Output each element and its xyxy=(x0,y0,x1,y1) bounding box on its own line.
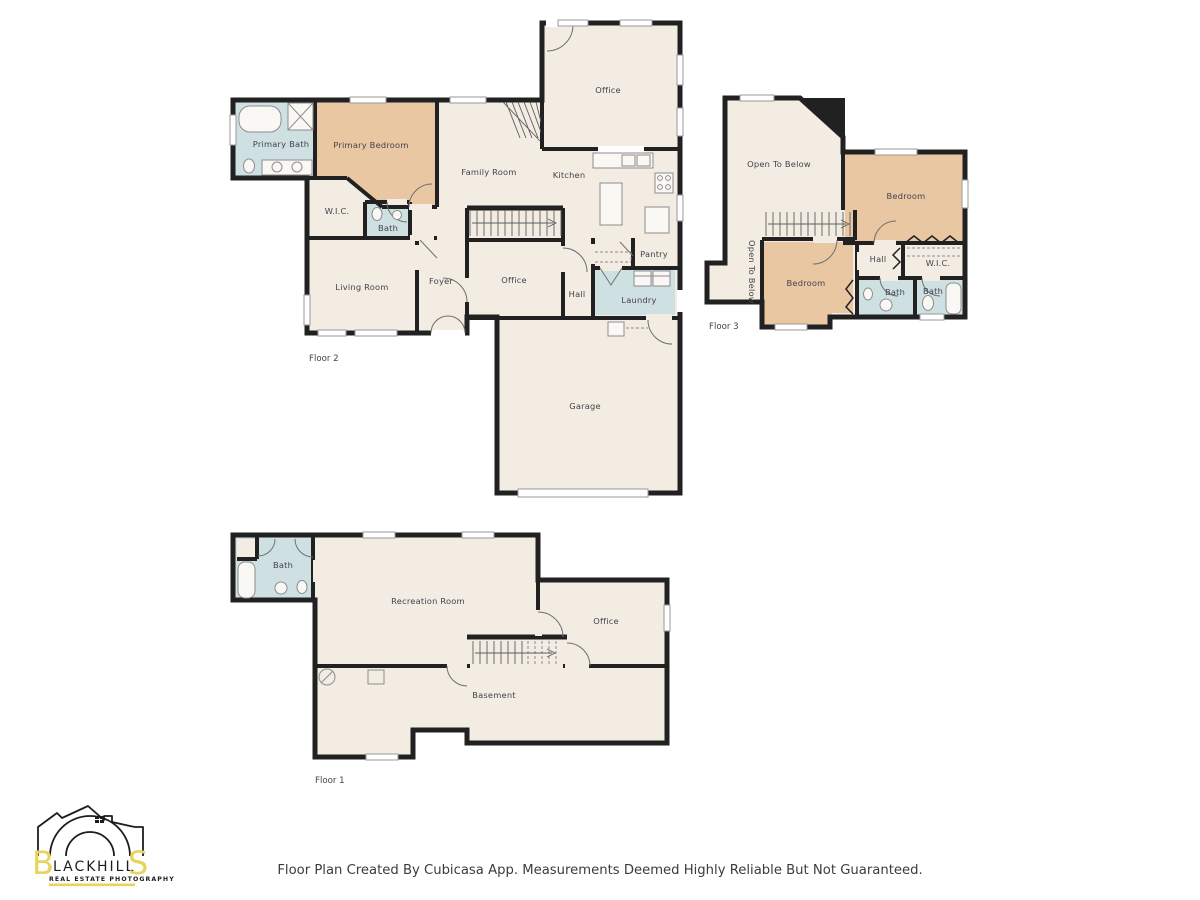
logo-underline xyxy=(49,884,135,887)
room-label-office-upper: Office xyxy=(595,85,621,95)
floor-3-plan: Open To Below Open To Below Bedroom Bedr… xyxy=(707,95,968,332)
room-label-office-lower: Office xyxy=(593,616,619,626)
room-label-foyer: Foyer xyxy=(429,276,453,286)
footer-caption: Floor Plan Created By Cubicasa App. Meas… xyxy=(277,863,922,878)
room-label-family-room: Family Room xyxy=(461,167,516,177)
room-label-pantry: Pantry xyxy=(640,249,668,259)
room-label-office-mid: Office xyxy=(501,275,527,285)
room-label-bath1: Bath xyxy=(273,560,293,570)
room-label-kitchen: Kitchen xyxy=(553,170,586,180)
floor-1-plan: Bath Recreation Room Office Basement Flo… xyxy=(233,532,670,786)
room-label-garage: Garage xyxy=(569,401,601,411)
room-label-bath2: Bath xyxy=(378,223,398,233)
room-label-hall2: Hall xyxy=(569,289,586,299)
floor3-label: Floor 3 xyxy=(709,322,739,332)
room-label-bedroom-upper: Bedroom xyxy=(887,191,926,201)
floor1-label: Floor 1 xyxy=(315,776,345,786)
room-label-open-to-below: Open To Below xyxy=(747,159,811,169)
brand-logo: B LACK HILL S REAL ESTATE PHOTOGRAPHY xyxy=(32,806,175,886)
room-label-primary-bath: Primary Bath xyxy=(253,139,309,149)
room-label-bath-left: Bath xyxy=(885,287,905,297)
floor-plan-canvas: Primary Bath Primary Bedroom Family Room… xyxy=(0,0,1200,900)
room-label-living-room: Living Room xyxy=(335,282,388,292)
room-label-laundry: Laundry xyxy=(621,295,656,305)
logo-text-lack: LACK xyxy=(53,859,97,875)
room-label-primary-bedroom: Primary Bedroom xyxy=(333,140,408,150)
logo-tagline: REAL ESTATE PHOTOGRAPHY xyxy=(49,876,175,883)
room-label-recreation-room: Recreation Room xyxy=(391,596,465,606)
room-label-hall3: Hall xyxy=(870,254,887,264)
floor-2-plan: Primary Bath Primary Bedroom Family Room… xyxy=(230,20,684,497)
room-label-basement: Basement xyxy=(472,690,516,700)
room-label-wic: W.I.C. xyxy=(325,206,350,216)
room-label-open-to-below-side: Open To Below xyxy=(747,240,757,304)
room-label-bedroom-lower: Bedroom xyxy=(787,278,826,288)
room-label-bath-right: Bath xyxy=(923,286,943,296)
bath1-closet xyxy=(237,539,257,559)
room-label-wic3: W.I.C. xyxy=(926,258,951,268)
floor2-label: Floor 2 xyxy=(309,354,339,364)
floor-plan-page: Primary Bath Primary Bedroom Family Room… xyxy=(0,0,1200,900)
